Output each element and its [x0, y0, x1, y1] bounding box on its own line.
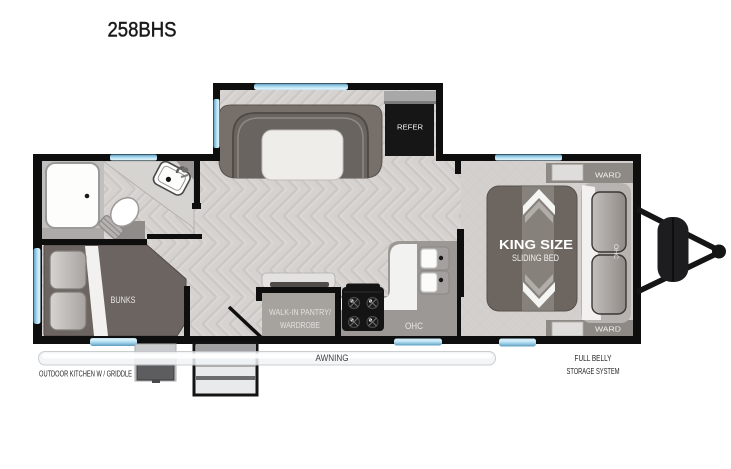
svg-text:KING SIZE: KING SIZE	[499, 237, 573, 252]
svg-text:WARD: WARD	[595, 173, 621, 180]
svg-text:AWNING: AWNING	[316, 353, 349, 363]
svg-text:OUTDOOR KITCHEN W / GRIDDLE: OUTDOOR KITCHEN W / GRIDDLE	[39, 370, 132, 379]
svg-text:258BHS: 258BHS	[108, 18, 177, 42]
svg-text:BUNKS: BUNKS	[111, 295, 136, 305]
svg-text:STORAGE SYSTEM: STORAGE SYSTEM	[567, 366, 620, 376]
svg-text:WARD: WARD	[595, 327, 621, 334]
svg-text:OHC: OHC	[612, 244, 619, 259]
svg-text:WARDROBE: WARDROBE	[280, 320, 320, 330]
svg-text:FULL BELLY: FULL BELLY	[575, 353, 612, 363]
svg-text:WALK-IN PANTRY/: WALK-IN PANTRY/	[269, 307, 332, 317]
svg-text:REFER: REFER	[397, 123, 424, 132]
svg-text:OHC: OHC	[405, 321, 423, 331]
svg-text:SLIDING BED: SLIDING BED	[512, 253, 559, 263]
